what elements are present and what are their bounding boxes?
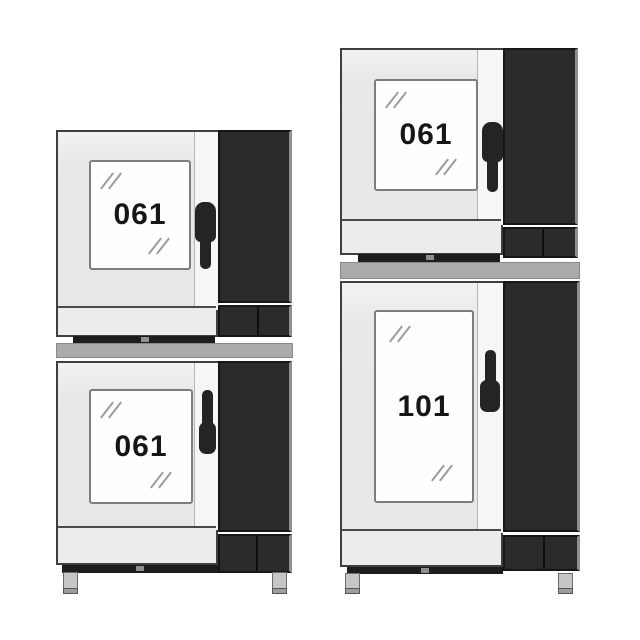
stacking-band (340, 262, 580, 279)
model-label: 061 (114, 430, 167, 464)
bar-clip (421, 568, 429, 573)
door-handle-icon (480, 350, 500, 412)
oven-unit-left-top: 061 (56, 130, 218, 337)
model-label: 101 (397, 390, 450, 424)
oven-base-strip (58, 526, 216, 563)
door-window: 061 (89, 160, 191, 270)
glass-reflection-icon (432, 463, 456, 485)
oven-base-strip (58, 306, 216, 335)
stacking-bar (358, 254, 500, 262)
side-panel-lower-section (503, 227, 578, 258)
oven-foot (558, 573, 573, 594)
glass-reflection-icon (436, 157, 460, 179)
door-window: 061 (374, 79, 478, 191)
plinth-bar (347, 567, 503, 574)
side-panel-lower-section (503, 535, 580, 571)
glass-reflection-icon (101, 171, 125, 193)
side-control-panel (503, 281, 580, 532)
side-control-panel (218, 130, 292, 303)
model-label: 061 (399, 118, 452, 152)
stacking-bar (73, 336, 215, 343)
plinth-bar (62, 565, 218, 573)
bar-clip (136, 566, 144, 571)
side-panel-lower-section (218, 534, 292, 573)
oven-base-strip (342, 529, 501, 565)
door-handle-icon (482, 122, 503, 192)
oven-foot (63, 572, 78, 594)
oven-unit-right-bottom: 101 (340, 281, 503, 567)
stacked-ovens-illustration: 061 061 (0, 0, 640, 640)
oven-base-strip (342, 219, 501, 253)
model-label: 061 (113, 198, 166, 232)
glass-reflection-icon (390, 324, 414, 346)
bar-clip (141, 337, 149, 342)
oven-unit-left-bottom: 061 (56, 361, 218, 565)
side-panel-lower-section (218, 305, 292, 337)
door-handle-icon (195, 202, 216, 269)
side-control-panel (503, 48, 578, 225)
oven-foot (272, 572, 287, 594)
glass-reflection-icon (151, 470, 175, 492)
glass-reflection-icon (149, 236, 173, 258)
side-control-panel (218, 361, 292, 532)
door-handle-icon (199, 390, 216, 454)
door-window: 061 (89, 389, 193, 504)
bar-clip (426, 255, 434, 260)
door-window: 101 (374, 310, 474, 503)
oven-foot (345, 573, 360, 594)
stacking-band (56, 343, 293, 358)
glass-reflection-icon (386, 90, 410, 112)
glass-reflection-icon (101, 400, 125, 422)
oven-unit-right-top: 061 (340, 48, 503, 255)
